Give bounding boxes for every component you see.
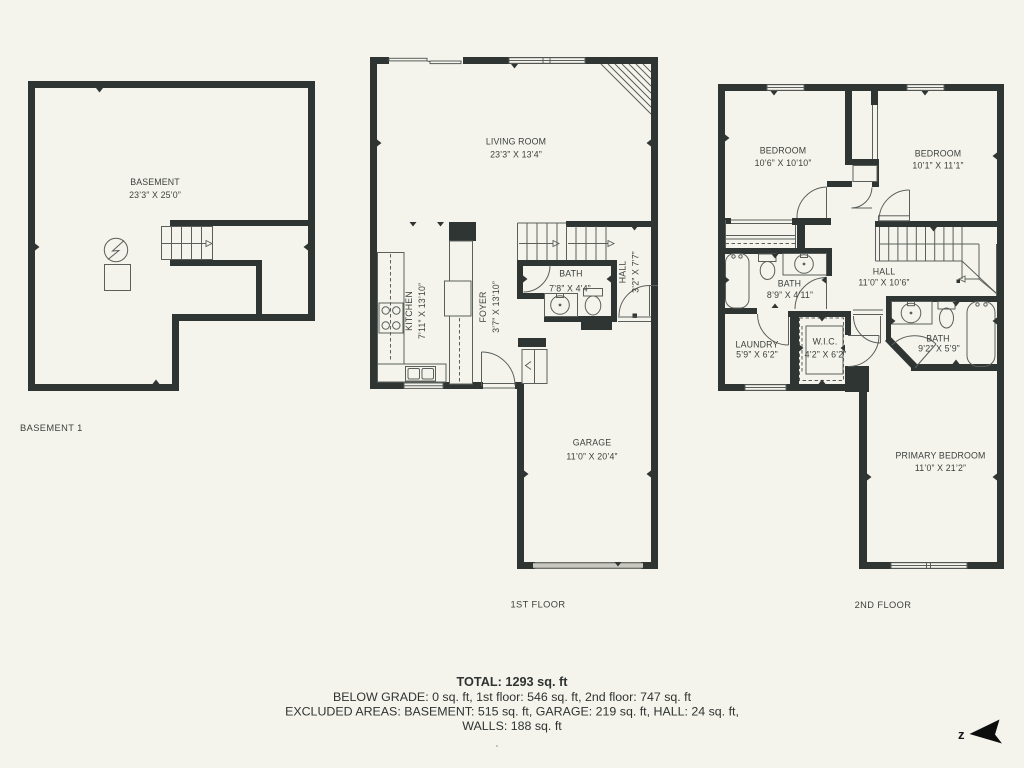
svg-text:BEDROOM: BEDROOM [915,149,962,159]
svg-text:z: z [958,727,965,742]
svg-text:FOYER: FOYER [478,291,488,322]
svg-text:4’2” X 6’2”: 4’2” X 6’2” [805,350,847,360]
svg-text:5’9” X 6’2”: 5’9” X 6’2” [736,350,778,360]
svg-text:GARAGE: GARAGE [573,438,612,448]
svg-text:23’3” X 13’4”: 23’3” X 13’4” [490,150,542,160]
svg-text:BATH: BATH [559,269,582,279]
svg-text:W.I.C.: W.I.C. [813,337,838,347]
svg-text:9’2” X 5’9”: 9’2” X 5’9” [918,344,960,354]
svg-text:BASEMENT 1: BASEMENT 1 [20,423,83,433]
svg-text:7’11” X 13’10”: 7’11” X 13’10” [417,283,427,339]
svg-text:8’9” X 4’11”: 8’9” X 4’11” [767,290,813,300]
svg-text:BEDROOM: BEDROOM [760,146,807,156]
svg-text:11’0” X 21’2”: 11’0” X 21’2” [915,463,966,473]
svg-text:3’2” X 7’7”: 3’2” X 7’7” [631,251,641,293]
svg-text:KITCHEN: KITCHEN [404,291,414,331]
svg-text:BATH: BATH [778,279,801,289]
svg-text:23’3” X 25’0”: 23’3” X 25’0” [129,190,181,200]
svg-text:2ND FLOOR: 2ND FLOOR [855,600,912,610]
svg-text:PRIMARY BEDROOM: PRIMARY BEDROOM [896,451,986,461]
svg-text:10’6” X 10’10”: 10’6” X 10’10” [755,158,812,168]
svg-text:3’7” X 13’10”: 3’7” X 13’10” [491,281,501,333]
svg-text:EXCLUDED AREAS: BASEMENT: 515: EXCLUDED AREAS: BASEMENT: 515 sq. ft, GA… [285,705,739,719]
svg-text:TOTAL: 1293 sq. ft: TOTAL: 1293 sq. ft [457,675,569,689]
svg-text:10’1” X 11’1”: 10’1” X 11’1” [912,161,963,171]
svg-text:BATH: BATH [926,334,949,344]
svg-text:LIVING ROOM: LIVING ROOM [486,137,546,147]
svg-text:BASEMENT: BASEMENT [130,177,180,187]
svg-text:11’0” X 20’4”: 11’0” X 20’4” [566,452,617,462]
svg-text:1ST FLOOR: 1ST FLOOR [510,600,565,610]
svg-text:LAUNDRY: LAUNDRY [736,340,779,350]
svg-text:HALL: HALL [618,261,628,284]
svg-text:11’0” X 10’6”: 11’0” X 10’6” [858,278,909,288]
svg-text:BELOW GRADE: 0 sq. ft, 1st flo: BELOW GRADE: 0 sq. ft, 1st floor: 546 sq… [333,690,692,704]
svg-text:WALLS: 188 sq. ft: WALLS: 188 sq. ft [462,719,562,733]
svg-text:HALL: HALL [873,267,896,277]
